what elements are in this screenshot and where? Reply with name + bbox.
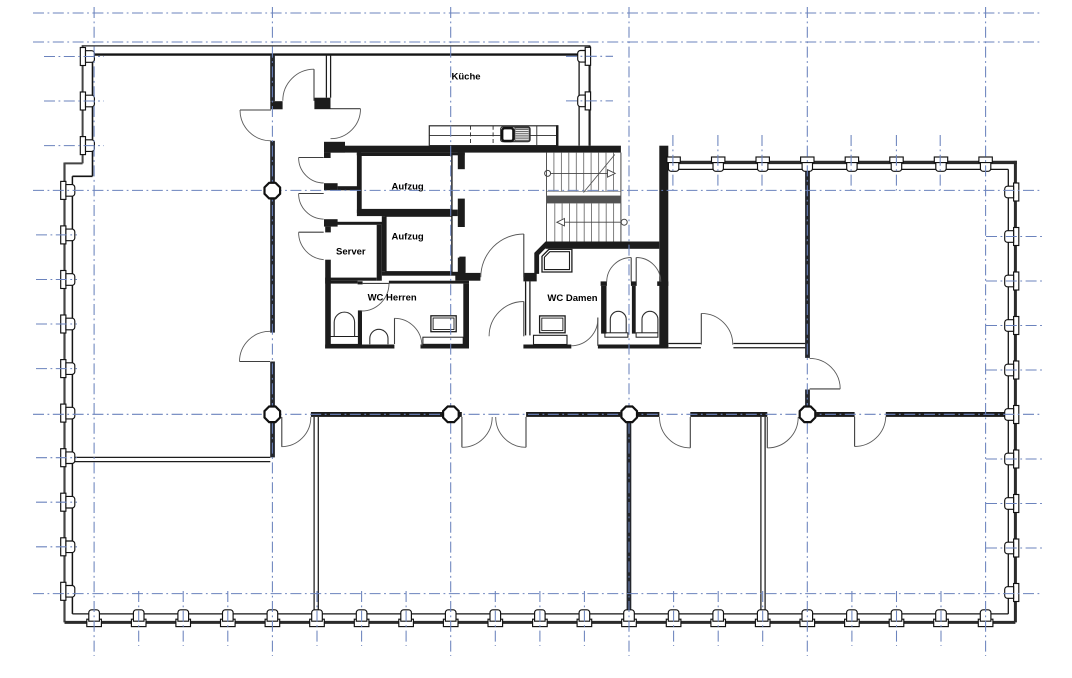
svg-text:WC Damen: WC Damen bbox=[547, 293, 597, 304]
svg-text:Küche: Küche bbox=[452, 72, 481, 83]
svg-text:Server: Server bbox=[336, 247, 366, 258]
svg-text:WC Herren: WC Herren bbox=[368, 293, 417, 304]
svg-text:Aufzug: Aufzug bbox=[392, 182, 424, 193]
svg-text:Aufzug: Aufzug bbox=[392, 231, 424, 242]
